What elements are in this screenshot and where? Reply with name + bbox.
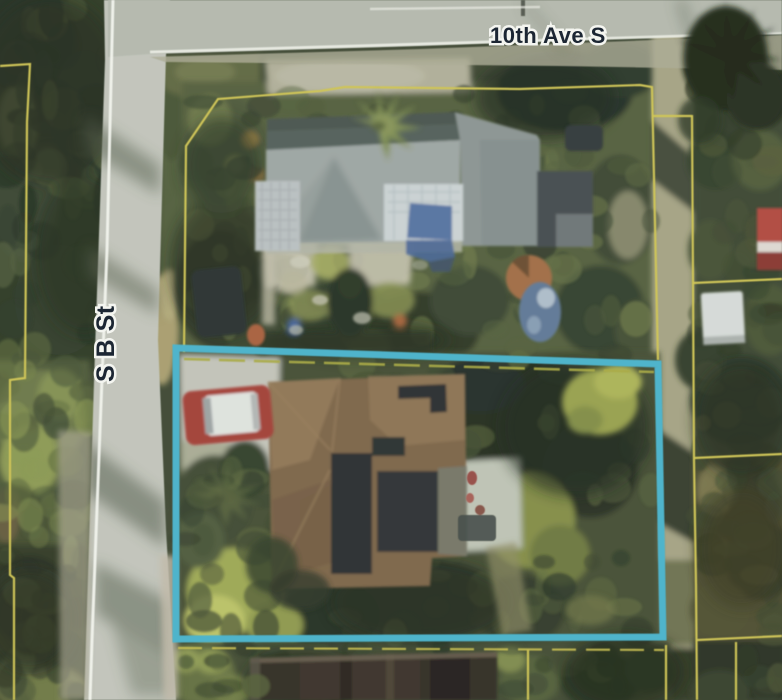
svg-text:S B St: S B St bbox=[92, 305, 120, 382]
svg-text:10th Ave S: 10th Ave S bbox=[490, 23, 606, 48]
